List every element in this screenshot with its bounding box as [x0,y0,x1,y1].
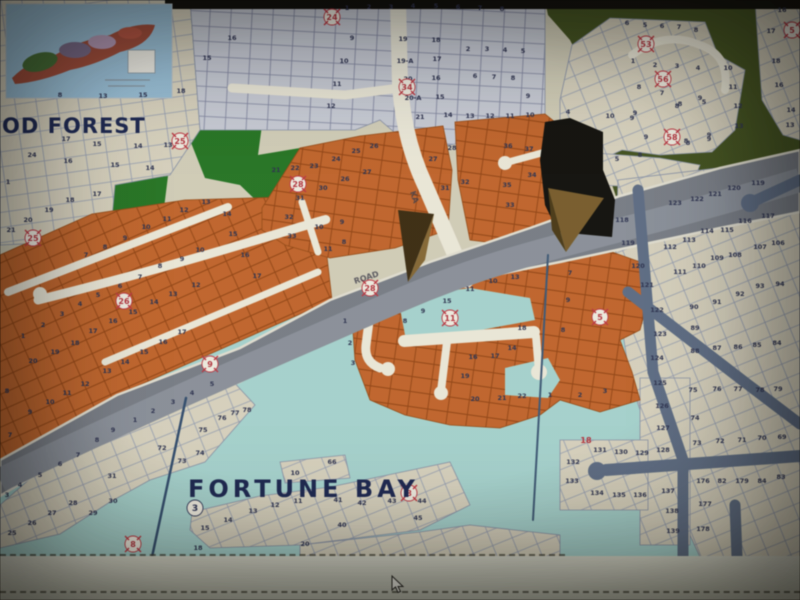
map-badge: 24 [324,9,340,25]
lot-number: 110 [692,262,706,270]
lot-number: 9 [111,426,116,434]
lot-number: 7 [478,4,483,12]
map-badge: 26 [116,293,132,309]
lot-number: 82 [717,477,726,485]
lot-number: 12 [179,206,188,214]
lot-number: 3 [60,310,65,318]
lot-number: 11 [162,215,172,223]
lot-number: 85 [752,341,762,349]
svg-text:18: 18 [580,436,592,445]
lot-number: 9 [180,255,185,263]
lot-number: 2 [41,321,46,329]
lot-number: 5 [615,155,620,163]
lot-number: 5 [702,98,707,106]
lot-number: 6 [473,72,478,80]
lot-number: 13 [734,122,743,130]
lot-number: 22 [517,392,526,400]
lot-number: 84 [772,339,782,347]
lot-number: 139 [666,527,680,535]
lot-number: 24 [331,155,341,163]
lot-number: 8 [403,317,408,325]
lot-number: 79 [773,385,783,393]
map-badge: 9 [202,356,218,372]
lot-number: 16 [240,251,250,259]
lot-number: 16 [227,34,237,42]
lot-number: 27 [362,168,371,176]
lot-number: 72 [715,437,724,445]
lot-number: 8 [58,91,63,99]
lot-number: 14 [786,106,796,114]
lot-number: 8 [5,387,10,395]
lot-number: 107 [753,243,767,251]
lot-number: 7 [492,73,497,81]
lot-number: 125 [653,379,667,387]
lot-number: 73 [692,439,701,447]
lot-number: 117 [761,212,775,220]
lot-number: 10 [723,64,733,72]
lot-number: 19-A [397,57,414,65]
lot-number: 121 [708,190,722,198]
lot-number: 27 [428,155,437,163]
lot-number: 24 [27,151,37,159]
lot-number: 126 [655,402,669,410]
lot-number: 11 [62,389,72,397]
lot-number: 89 [690,324,700,332]
lot-number: 18 [431,36,441,44]
lot-number: 13 [168,290,177,298]
lot-number: 87 [712,344,721,352]
lot-number: 15 [128,308,138,316]
lot-number: 10 [605,112,615,120]
svg-text:5: 5 [597,313,603,322]
lot-number: 9 [123,234,128,242]
lot-number: 119 [621,239,635,247]
lot-number: 6 [58,460,63,468]
lot-number: 7 [138,273,143,281]
lot-number: 93 [755,282,764,290]
lot-number: 123 [653,330,667,338]
lot-number: 18 [517,324,527,332]
lot-number: 130 [614,448,628,456]
lot-number: 6 [456,3,461,11]
lot-number: 91 [712,298,722,306]
lot-number: 19 [460,372,470,380]
lot-number: 10 [314,223,324,231]
lot-number: 18 [70,339,80,347]
lot-number: 20 [300,540,310,548]
lot-number: 137 [661,487,675,495]
lot-number: 4 [566,108,571,116]
lot-number: 28 [447,144,457,152]
lot-number: 27 [47,509,56,517]
lot-number: 2 [466,45,471,53]
lot-number: 123 [668,199,682,207]
lot-number: 138 [665,507,679,515]
lot-number: 14 [120,358,130,366]
lot-number: 9 [28,408,33,416]
svg-text:9: 9 [207,360,213,369]
lot-number: 120 [631,262,645,270]
lot-number: 26 [369,142,379,150]
lot-number: 10 [195,246,205,254]
lot-number: 88 [690,347,700,355]
lot-number: 66 [327,458,337,466]
lot-number: 19 [50,348,60,356]
lot-number: 73 [177,457,186,465]
lot-number: 106 [771,239,785,247]
lot-number: 3 [171,398,176,406]
lot-number: 15 [202,54,212,62]
svg-text:25: 25 [27,234,39,243]
lot-number: 12 [326,102,335,110]
lot-number: 6 [660,22,665,30]
lot-number: 94 [775,280,785,288]
lot-number: 6 [625,19,630,27]
lot-number: 33 [505,201,514,209]
lot-number: 9 [566,296,571,304]
lot-number: 18 [193,544,203,552]
lot-number: 26 [27,519,37,527]
lot-number: 72 [157,444,166,452]
lot-number: 10 [141,223,151,231]
lot-number: 5 [434,2,439,10]
screen-photo: 123456789101112191819-A17201620-A1521141… [0,0,800,600]
lot-number: 5 [96,291,101,299]
lot-number: 83 [776,473,785,481]
lot-number: 111 [673,268,687,276]
lot-number: 3 [485,45,490,53]
lot-number: 18 [65,196,75,204]
lot-number: 8 [500,5,505,13]
lot-number: 10 [45,398,55,406]
lot-number: 177 [698,500,712,508]
lot-number: 1 [343,317,348,325]
lot-number: 69 [777,433,787,441]
lot-number: 31 [440,184,450,192]
plat-map-canvas[interactable]: 123456789101112191819-A17201620-A1521141… [0,0,800,557]
lot-number: 132 [566,458,580,466]
lot-number: 30 [318,184,328,192]
lot-number: 4 [696,64,701,72]
lot-number: 15 [200,524,210,532]
lot-number: 7 [677,23,682,31]
map-badge: 8 [125,536,141,552]
lot-number: 15 [228,230,238,238]
lot-number: 10 [525,111,535,119]
lot-number: 5 [521,47,526,55]
lot-number: 14 [223,516,233,524]
map-badge: 53 [638,36,654,52]
lot-number: 71 [737,436,747,444]
lot-number: 134 [590,489,604,497]
lot-number: 115 [720,226,734,234]
lot-number: 8 [675,102,680,110]
lot-number: 131 [593,446,607,454]
lot-number: 14 [149,298,159,306]
lot-number: 133 [565,477,579,485]
lot-number: 8 [342,238,347,246]
lot-number: 18 [176,87,186,95]
lot-number: 109 [710,254,724,262]
map-badge: 28 [290,176,306,192]
lot-number: 23 [309,162,318,170]
lot-number: 5 [643,21,648,29]
lot-number: 20 [470,395,480,403]
lot-number: 120 [727,184,741,192]
lot-number: 74 [195,449,205,457]
lot-number: 37 [524,145,533,153]
lot-number: 30 [108,497,118,505]
lot-number: 70 [757,434,767,442]
lot-number: 179 [735,477,749,485]
lot-number: 11 [332,80,342,88]
lot-number: 127 [656,424,670,432]
lot-number: 16 [431,74,441,82]
map-badge: 58 [664,129,680,145]
lot-number: 75 [688,386,698,394]
map-badge: 34 [399,79,415,95]
lot-number: 114 [700,227,714,235]
lot-number: 128 [656,446,670,454]
lot-number: 16 [774,81,784,89]
lot-number: 13 [510,273,519,281]
lot-number: 17 [88,327,97,335]
lot-number: 4 [411,2,416,10]
map-badge: 5 [784,22,800,38]
lot-number: 21 [415,113,425,121]
lot-number: 113 [682,236,696,244]
lot-number: 84 [757,477,767,485]
lot-number: 19 [44,206,54,214]
lot-number: 16 [108,317,118,325]
lot-number: 176 [696,477,710,485]
lot-number: 4 [190,389,195,397]
lot-number: 10 [488,277,498,285]
lot-number: 8 [103,243,108,251]
lot-number: 11 [505,112,515,120]
region-label: OD FOREST [2,114,146,138]
lot-number: 6 [118,282,123,290]
svg-text:24: 24 [326,13,338,22]
lot-number: 9 [707,131,712,139]
lot-number: 2 [151,407,156,415]
lot-number: 13 [248,507,257,515]
lot-number: 7 [8,431,13,439]
lot-number: 119 [751,179,765,187]
lot-number: 12 [80,380,89,388]
lot-number: 10 [339,57,349,65]
selection-dash-top [0,554,565,556]
region-label: FORTUNE BAY [188,475,419,503]
lot-number: 19 [398,35,408,43]
svg-text:5: 5 [789,26,795,35]
lot-number: 116 [738,217,752,225]
lot-number: 17 [92,190,101,198]
lot-number: 31 [295,194,305,202]
lot-number: 14 [145,164,155,172]
lot-number: 3 [351,359,356,367]
lot-number: 15 [442,297,452,305]
lot-number: 15 [110,161,120,169]
lot-number: 3 [603,387,608,395]
lot-number: 3 [5,491,10,499]
lot-number: 86 [733,343,743,351]
lot-number: 2 [367,3,372,11]
lot-number: 4 [78,300,83,308]
lot-number: 21 [6,226,16,234]
map-badge: 25 [172,133,188,149]
svg-text:3: 3 [192,504,198,514]
lot-number: 77 [733,385,742,393]
lot-number: 8 [637,83,642,91]
lot-number: 9 [633,109,638,117]
lot-number: 26 [340,175,350,183]
map-badge: 25 [25,230,41,246]
lot-number: 25 [7,529,17,537]
lot-number: 9 [340,218,345,226]
lot-number: 13 [102,367,111,375]
lot-number: 76 [217,414,227,422]
lot-number: 11 [465,285,475,293]
lot-number: 12 [191,281,200,289]
lot-number: 14 [222,210,232,218]
lot-number: 40 [337,521,347,529]
lot-number: 33 [287,232,296,240]
lot-number: 36 [503,142,513,150]
lot-number: 32 [284,213,293,221]
lot-number: 14 [133,142,143,150]
lot-number: 15 [92,140,102,148]
lot-number: 129 [635,449,649,457]
lot-number: 178 [696,525,710,533]
lot-number: 2 [348,339,353,347]
lot-number: 8 [561,326,566,334]
lot-number: 45 [413,514,423,522]
lot-number: 9 [350,34,355,42]
lot-number: 122 [690,195,704,203]
lot-number: 11 [728,83,738,91]
lot-number: 16 [777,6,787,14]
lot-number: 5 [210,380,215,388]
lot-number: 9 [526,92,531,100]
lot-number: 118 [615,216,629,224]
lot-number: 12 [733,102,742,110]
lot-number: 121 [640,281,654,289]
lot-number: 15 [435,93,445,101]
lot-number: 1 [548,391,553,399]
lot-number: 1 [6,178,11,186]
lot-number: 14 [443,111,453,119]
lot-number: 28 [68,499,78,507]
lot-number: 13 [785,121,794,129]
lot-number: 2 [578,391,583,399]
lot-number: 8 [95,436,100,444]
lot-number: 13 [98,92,107,100]
lot-number: 7 [76,451,81,459]
lot-number: 17 [432,55,441,63]
lot-number: 18 [771,57,781,65]
lot-number: 3 [389,3,394,11]
lot-number: 13 [465,112,474,120]
map-badge: 11 [442,310,458,326]
lot-number: 16 [158,338,168,346]
lot-number: 11 [323,245,333,253]
lot-number: 77 [230,409,239,417]
lot-number: 8 [158,262,163,270]
lot-number: 17 [490,352,499,360]
lot-number: 31 [107,472,117,480]
lot-number: 32 [460,178,469,186]
lot-number: 8 [686,139,691,147]
lot-number: 9 [644,133,649,141]
lot-number: 34 [527,171,537,179]
lot-number: 12 [485,112,494,120]
svg-text:8: 8 [130,540,136,549]
lot-number: 5 [38,471,43,479]
lot-number: 21 [271,166,281,174]
lot-number: 15 [138,91,148,99]
lot-number: 7 [660,89,665,97]
lot-number: 44 [417,497,427,505]
top-bezel-strip [165,0,800,9]
lot-number: 1 [631,57,636,65]
lot-number: 8 [638,151,643,159]
lot-number: 21 [497,394,507,402]
lot-number: 74 [690,414,700,422]
lot-number: 7 [568,269,573,277]
lot-number: 135 [612,491,626,499]
svg-text:25: 25 [174,137,186,146]
lot-number: 13 [201,198,210,206]
lot-number: 76 [712,385,722,393]
inset-overview-map [6,4,172,98]
svg-text:11: 11 [444,314,456,323]
lot-number: 108 [728,251,742,259]
lot-number: 78 [755,386,765,394]
lot-number: 17 [252,272,261,280]
map-badge: 18 [580,436,592,445]
lot-number: 8 [511,74,516,82]
lot-number: 3 [675,62,680,70]
lot-number: 136 [633,491,647,499]
lot-number: 35 [502,181,512,189]
svg-text:26: 26 [118,297,130,306]
mouse-cursor [391,575,409,595]
lot-number: 17 [177,328,186,336]
lot-number: 90 [689,303,699,311]
lot-number: 122 [650,306,664,314]
lot-number: 15 [139,348,149,356]
lot-number: 20 [28,357,38,365]
lot-number: 75 [198,426,208,434]
lot-number: 16 [468,353,478,361]
lot-number: 7 [84,251,89,259]
svg-text:56: 56 [657,75,669,84]
lot-number: 1 [133,416,138,424]
svg-text:28: 28 [292,180,304,189]
map-badge: 5 [592,309,608,325]
lot-number: 14 [507,344,517,352]
lot-number: 1 [21,332,26,340]
lot-number: 22 [290,164,299,172]
svg-text:28: 28 [364,284,376,293]
lot-number: 1 [345,4,350,12]
lot-number: 20 [23,216,33,224]
lot-number: 9 [421,307,426,315]
lot-number: 13 [163,141,172,149]
lot-number: 112 [663,243,677,251]
lot-number: 4 [503,46,508,54]
